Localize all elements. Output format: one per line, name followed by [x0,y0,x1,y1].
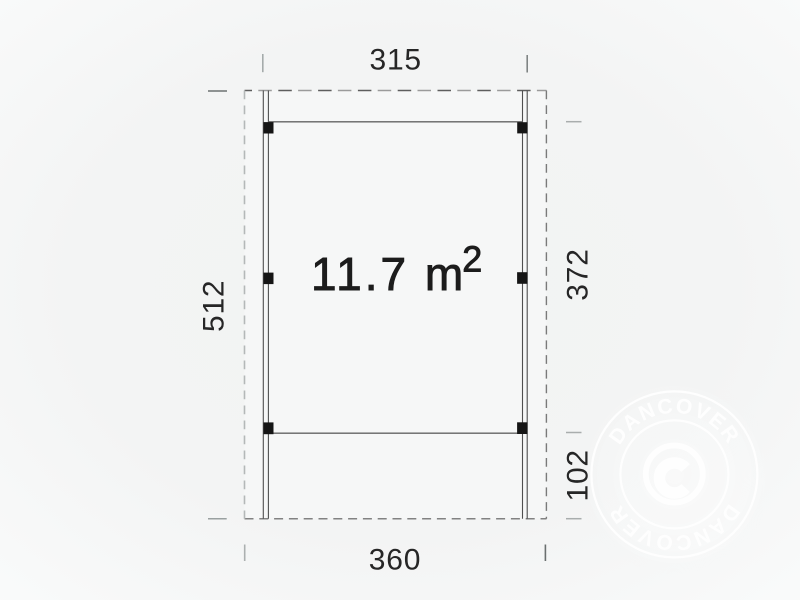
svg-text:315: 315 [369,44,421,77]
svg-text:102: 102 [561,449,594,501]
svg-text:372: 372 [561,248,594,300]
svg-text:512: 512 [198,280,231,332]
svg-text:11.7 m2: 11.7 m2 [311,239,485,301]
svg-text:360: 360 [369,544,421,577]
